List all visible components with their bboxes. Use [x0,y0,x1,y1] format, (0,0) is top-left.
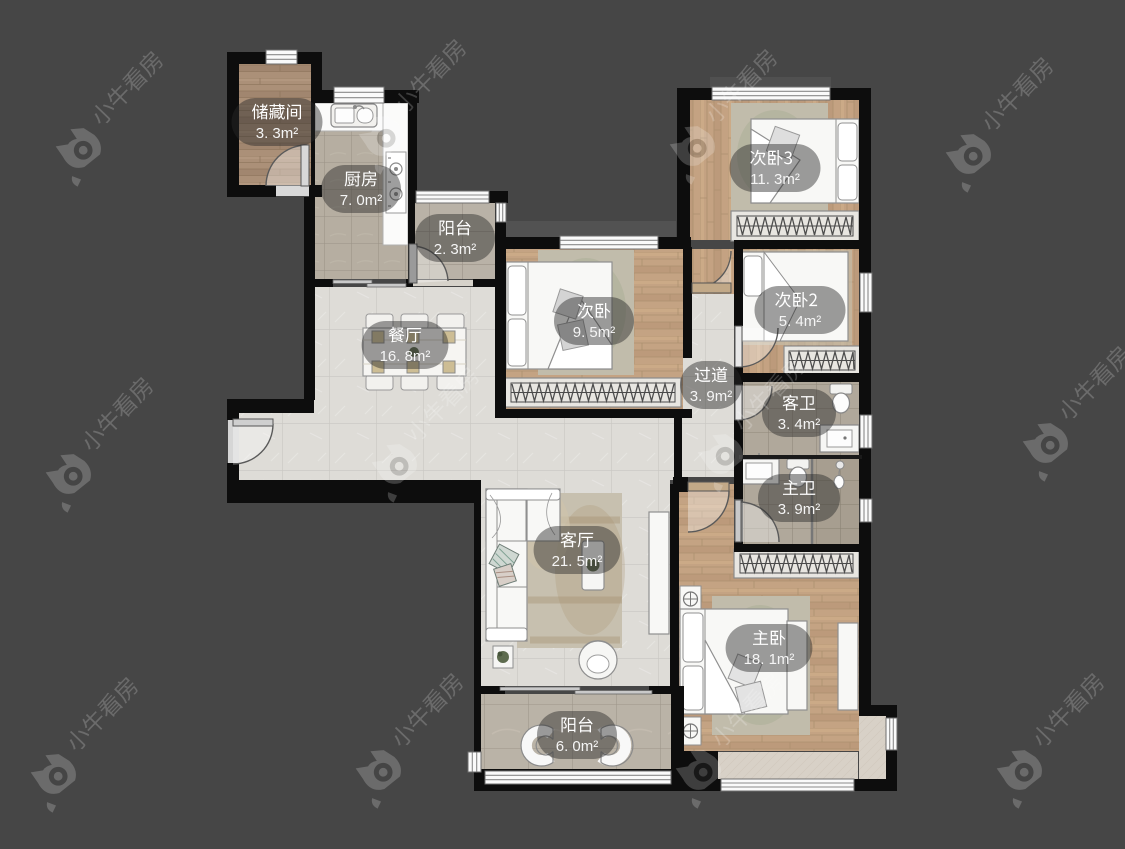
svg-text:5. 4m²: 5. 4m² [779,313,822,330]
svg-text:11. 3m²: 11. 3m² [750,171,800,188]
svg-text:21. 5m²: 21. 5m² [552,553,603,570]
svg-text:3. 4m²: 3. 4m² [778,416,821,433]
svg-text:6. 0m²: 6. 0m² [556,738,599,755]
svg-text:18. 1m²: 18. 1m² [744,651,795,668]
svg-text:7. 0m²: 7. 0m² [340,192,383,209]
svg-text:2. 3m²: 2. 3m² [434,241,477,258]
svg-text:16. 8m²: 16. 8m² [380,348,431,365]
svg-text:3. 3m²: 3. 3m² [256,125,299,142]
svg-text:9. 5m²: 9. 5m² [573,324,616,341]
svg-text:3. 9m²: 3. 9m² [690,388,733,405]
svg-text:3. 9m²: 3. 9m² [778,501,821,518]
